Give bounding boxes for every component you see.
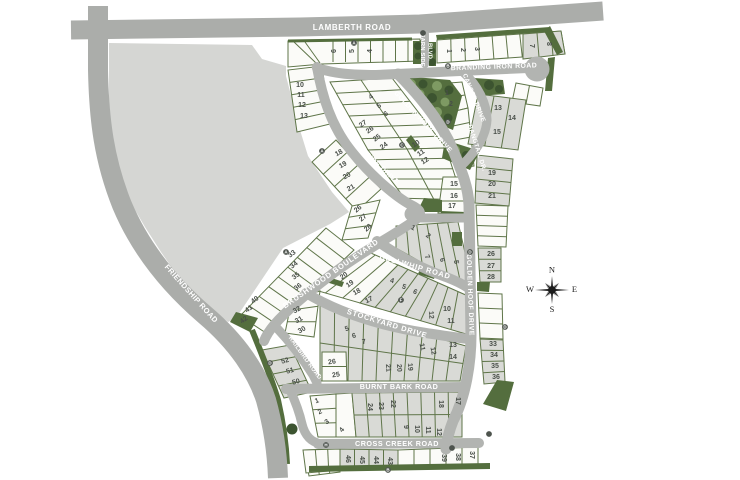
- svg-text:10: 10: [413, 425, 420, 433]
- svg-text:43: 43: [386, 457, 393, 465]
- svg-text:34: 34: [490, 352, 498, 359]
- svg-text:15: 15: [450, 181, 458, 188]
- svg-text:44: 44: [372, 456, 379, 464]
- svg-text:20: 20: [488, 181, 496, 188]
- svg-text:F: F: [400, 298, 403, 303]
- svg-text:S: S: [550, 304, 555, 314]
- svg-text:12: 12: [427, 311, 435, 319]
- svg-text:H: H: [324, 443, 327, 448]
- svg-text:26: 26: [487, 251, 495, 258]
- svg-text:22: 22: [389, 400, 396, 408]
- svg-text:39: 39: [440, 454, 447, 462]
- svg-text:13: 13: [300, 113, 308, 120]
- svg-text:12: 12: [435, 428, 442, 436]
- svg-text:W: W: [526, 284, 534, 294]
- svg-text:BLVD.: BLVD.: [426, 43, 432, 61]
- svg-text:11: 11: [424, 426, 431, 434]
- svg-text:2: 2: [459, 48, 466, 52]
- svg-text:33: 33: [489, 341, 497, 348]
- svg-text:19: 19: [488, 170, 496, 177]
- svg-text:BURNT BARK ROAD: BURNT BARK ROAD: [360, 382, 439, 391]
- svg-text:7: 7: [528, 44, 535, 48]
- svg-text:17: 17: [448, 203, 456, 210]
- svg-text:E: E: [572, 284, 577, 294]
- svg-text:1: 1: [445, 49, 452, 53]
- svg-text:24: 24: [366, 403, 373, 411]
- svg-text:26: 26: [328, 358, 337, 366]
- svg-text:36: 36: [492, 374, 500, 381]
- svg-text:25: 25: [332, 371, 341, 379]
- svg-text:CROSS CREEK ROAD: CROSS CREEK ROAD: [355, 439, 439, 448]
- svg-text:28: 28: [487, 274, 495, 281]
- svg-text:20: 20: [395, 364, 403, 372]
- svg-text:6: 6: [331, 49, 338, 53]
- svg-text:13: 13: [449, 342, 457, 349]
- svg-text:N: N: [549, 264, 555, 274]
- svg-text:16: 16: [450, 193, 458, 200]
- svg-text:13: 13: [494, 105, 502, 112]
- svg-text:2: 2: [449, 101, 453, 108]
- svg-text:38: 38: [454, 453, 461, 461]
- svg-text:35: 35: [491, 363, 499, 370]
- svg-text:11: 11: [418, 343, 426, 352]
- svg-text:10: 10: [443, 306, 451, 313]
- svg-text:9: 9: [402, 425, 409, 429]
- svg-text:5: 5: [452, 260, 459, 265]
- svg-text:4: 4: [367, 49, 374, 53]
- svg-text:3: 3: [473, 47, 480, 51]
- svg-text:14: 14: [508, 115, 516, 122]
- svg-text:45: 45: [358, 456, 365, 464]
- svg-text:8: 8: [545, 42, 552, 46]
- svg-text:23: 23: [377, 402, 384, 410]
- svg-text:5: 5: [349, 49, 356, 53]
- svg-text:17: 17: [454, 397, 461, 405]
- svg-text:37: 37: [468, 451, 475, 459]
- svg-text:10: 10: [296, 82, 304, 89]
- svg-text:12: 12: [298, 102, 306, 109]
- svg-text:19: 19: [406, 363, 414, 371]
- svg-text:21: 21: [488, 193, 496, 200]
- svg-text:BARN SIDE: BARN SIDE: [419, 33, 425, 67]
- svg-text:LAMBERTH ROAD: LAMBERTH ROAD: [313, 23, 391, 32]
- svg-text:18: 18: [437, 400, 444, 408]
- svg-text:21: 21: [384, 364, 392, 372]
- svg-text:11: 11: [297, 92, 305, 99]
- svg-text:15: 15: [493, 129, 501, 136]
- svg-text:14: 14: [449, 354, 457, 361]
- svg-text:1: 1: [445, 90, 449, 97]
- svg-text:12: 12: [429, 347, 437, 356]
- svg-text:27: 27: [487, 263, 495, 270]
- svg-text:46: 46: [344, 455, 351, 463]
- svg-text:11: 11: [447, 318, 455, 325]
